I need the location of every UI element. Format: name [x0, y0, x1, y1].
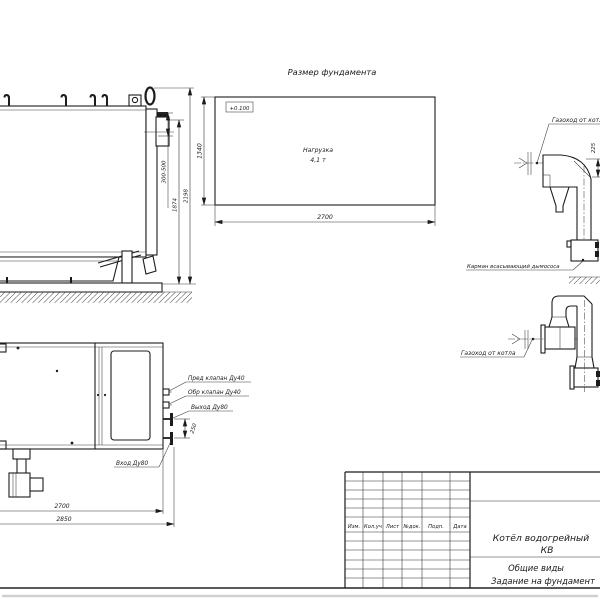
product-name-line2: КВ	[541, 545, 554, 556]
burner-assembly	[9, 449, 43, 497]
check-valve-label: Обр клапан Ду40	[188, 390, 241, 396]
flue-side-duct-label: Газоход от котла	[552, 117, 600, 124]
pocket-ground	[569, 277, 600, 284]
foundation-load-line1: Нагрузка	[303, 147, 333, 154]
dim-nozzle-spacing: 250	[190, 422, 199, 434]
inlet-label: Вход Ду80	[116, 461, 148, 467]
flue-duct-side-view: Газоход от котла Карман всасывающий дымо…	[466, 117, 600, 284]
flue-front-duct-label: Газоход от котла	[461, 350, 516, 357]
title-block: Изм. Кол.уч Лист №док. Подп. Дата Котёл …	[0, 472, 600, 588]
dim-foundation-depth: 1340	[197, 143, 204, 159]
column-list: Лист	[385, 524, 400, 530]
lifting-eye	[129, 88, 155, 107]
dim-flue-offset: 225	[591, 142, 597, 153]
dim-body-height: 1874	[173, 198, 179, 212]
column-ndok: №док.	[403, 524, 421, 530]
drawing-sheet: 300-500 1874 2198 Размер фундамента +0.1…	[0, 0, 600, 600]
foundation-load-line2: 4,1 т	[310, 157, 326, 164]
blueprint-canvas: 300-500 1874 2198 Размер фундамента +0.1…	[0, 0, 600, 600]
doc-type-line2: Задание на фундамент	[491, 576, 596, 586]
outlet-label: Выход Ду80	[191, 405, 228, 411]
dim-foundation-width: 2700	[317, 214, 333, 221]
lifting-hooks-top	[4, 94, 109, 106]
safety-valve-label: Пред клапан Ду40	[188, 376, 245, 382]
suction-pocket	[567, 240, 599, 261]
dim-body-length: 2700	[54, 503, 69, 510]
column-podp: Подп.	[428, 524, 444, 530]
foundation-plan: Размер фундамента +0.100 Нагрузка 4,1 т …	[197, 67, 436, 226]
doc-type-line1: Общие виды	[508, 563, 564, 573]
revision-grid: Изм. Кол.уч Лист №док. Подп. Дата	[345, 472, 470, 588]
product-name-line1: Котёл водогрейный	[493, 533, 589, 544]
foundation-title: Размер фундамента	[288, 67, 377, 77]
title-block-names: Котёл водогрейный КВ Общие виды Задание …	[470, 501, 600, 586]
dim-total-height: 2198	[184, 189, 190, 203]
column-data: Дата	[452, 524, 466, 530]
boiler-plan-view: Пред клапан Ду40 Обр клапан Ду40 Выход Д…	[0, 343, 251, 527]
ground	[0, 283, 196, 303]
column-koluch: Кол.уч	[364, 524, 382, 530]
horizontal-duct	[541, 325, 575, 353]
right-side-nozzles	[163, 389, 173, 445]
dim-flange-height: 300-500	[162, 160, 168, 183]
flue-side-pocket-label: Карман всасывающий дымососа	[467, 264, 560, 270]
dim-total-length: 2850	[56, 516, 71, 523]
level-mark-value: +0.100	[230, 106, 251, 112]
column-izm: Изм.	[348, 524, 360, 530]
flue-duct-front-view: Газоход от котла	[460, 296, 600, 392]
boiler-side-view: 300-500 1874 2198	[0, 88, 196, 304]
